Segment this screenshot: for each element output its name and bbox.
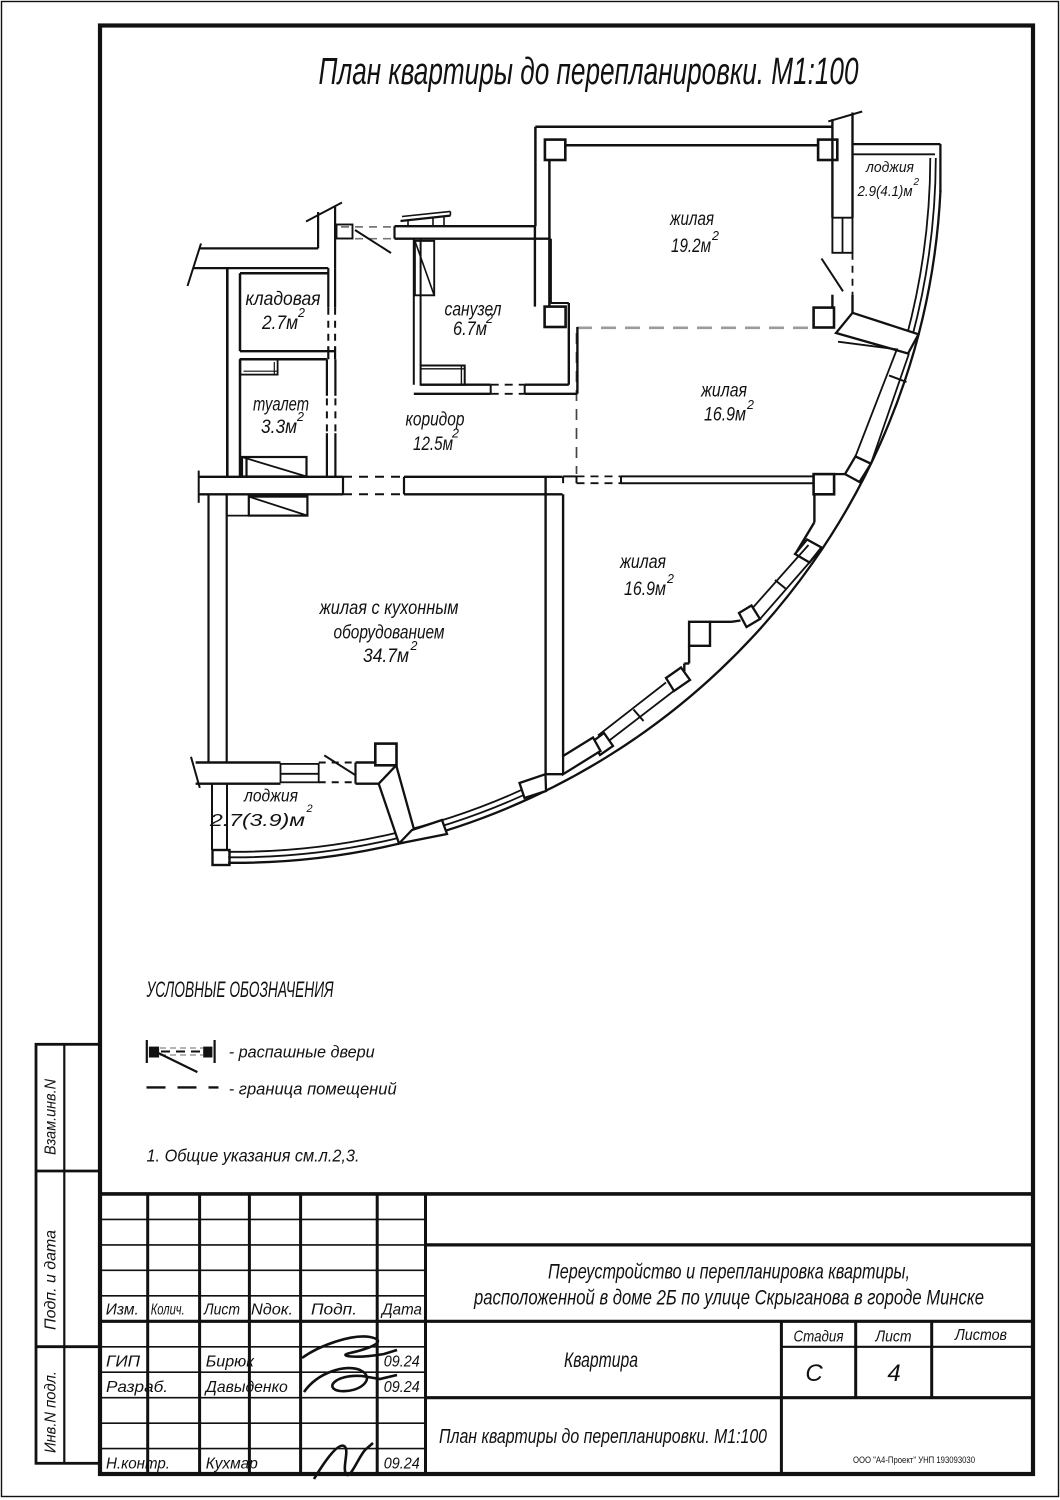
- svg-text:2: 2: [746, 398, 754, 412]
- svg-text:34.7м: 34.7м: [363, 646, 409, 667]
- svg-text:2: 2: [666, 572, 674, 586]
- svg-text:3.3м: 3.3м: [261, 417, 297, 438]
- svg-text:Взам.инв.N: Взам.инв.N: [43, 1079, 60, 1155]
- svg-text:1. Общие указания см.л.2,3.: 1. Общие указания см.л.2,3.: [147, 1146, 360, 1166]
- svg-text:- распашные двери: - распашные двери: [229, 1043, 376, 1062]
- svg-text:09.24: 09.24: [384, 1379, 420, 1396]
- svg-text:План квартиры до перепланировк: План квартиры до перепланировки. М1:100: [439, 1426, 767, 1448]
- svg-text:оборудованием: оборудованием: [334, 623, 445, 644]
- svg-text:2.7(3.9)м: 2.7(3.9)м: [209, 810, 305, 830]
- svg-text:кладовая: кладовая: [246, 289, 321, 310]
- svg-text:09.24: 09.24: [384, 1354, 420, 1371]
- svg-text:ГИП: ГИП: [106, 1354, 140, 1371]
- svg-text:жилая: жилая: [700, 381, 747, 402]
- svg-text:Подп. и дата: Подп. и дата: [43, 1230, 60, 1330]
- svg-text:4: 4: [887, 1360, 900, 1387]
- svg-text:2: 2: [711, 229, 719, 243]
- svg-text:лоджия: лоджия: [243, 786, 298, 806]
- svg-text:Лист: Лист: [875, 1329, 912, 1346]
- svg-text:УСЛОВНЫЕ ОБОЗНАЧЕНИЯ: УСЛОВНЫЕ ОБОЗНАЧЕНИЯ: [146, 977, 334, 1002]
- svg-text:Бирюк: Бирюк: [206, 1354, 255, 1371]
- svg-text:Изм.: Изм.: [106, 1302, 139, 1319]
- svg-text:С: С: [805, 1360, 823, 1387]
- svg-text:Разраб.: Разраб.: [106, 1379, 168, 1396]
- svg-text:Nдок.: Nдок.: [251, 1302, 293, 1319]
- svg-text:Квартира: Квартира: [564, 1349, 638, 1372]
- svg-text:Листов: Листов: [954, 1327, 1007, 1344]
- svg-text:жилая с кухонным: жилая с кухонным: [319, 598, 459, 619]
- svg-text:План квартиры до перепланировк: План квартиры до перепланировки. М1:100: [319, 51, 859, 93]
- svg-text:Дата: Дата: [380, 1302, 422, 1319]
- svg-text:Лист: Лист: [203, 1302, 240, 1319]
- svg-text:16.9м: 16.9м: [704, 405, 746, 426]
- svg-text:2: 2: [485, 312, 493, 326]
- svg-text:2.7м: 2.7м: [261, 313, 298, 334]
- svg-text:- граница помещений: - граница помещений: [229, 1080, 398, 1099]
- svg-text:2: 2: [296, 410, 304, 424]
- svg-text:Подп.: Подп.: [311, 1302, 357, 1319]
- svg-text:2: 2: [913, 177, 920, 188]
- svg-text:Н.контр.: Н.контр.: [106, 1455, 170, 1472]
- svg-text:16.9м: 16.9м: [624, 579, 666, 600]
- svg-text:2.9(4.1)м: 2.9(4.1)м: [857, 183, 913, 200]
- svg-text:2: 2: [451, 427, 459, 441]
- svg-text:жилая: жилая: [619, 552, 666, 573]
- svg-text:2: 2: [410, 639, 418, 653]
- svg-text:Колич.: Колич.: [151, 1302, 185, 1319]
- svg-text:09.24: 09.24: [384, 1455, 420, 1472]
- svg-text:Кухмар: Кухмар: [206, 1455, 258, 1472]
- svg-text:расположенной в доме 2Б по ули: расположенной в доме 2Б по улице Скрыган…: [473, 1287, 984, 1310]
- svg-text:Инв.N подл.: Инв.N подл.: [43, 1371, 60, 1453]
- svg-text:Давыденко: Давыденко: [204, 1379, 288, 1396]
- svg-text:19.2м: 19.2м: [671, 236, 711, 257]
- svg-text:12.5м: 12.5м: [413, 434, 453, 455]
- svg-text:лоджия: лоджия: [865, 159, 914, 176]
- svg-text:2: 2: [297, 306, 305, 320]
- svg-text:Переустройство и перепланировк: Переустройство и перепланировка квартиры…: [548, 1261, 910, 1284]
- svg-text:жилая: жилая: [669, 209, 714, 230]
- svg-text:2: 2: [306, 803, 313, 815]
- svg-text:санузел: санузел: [445, 300, 502, 321]
- svg-text:Стадия: Стадия: [794, 1329, 844, 1346]
- svg-text:6.7м: 6.7м: [453, 319, 487, 340]
- svg-text:ООО "А4-Проект" УНП 193093030: ООО "А4-Проект" УНП 193093030: [853, 1455, 975, 1466]
